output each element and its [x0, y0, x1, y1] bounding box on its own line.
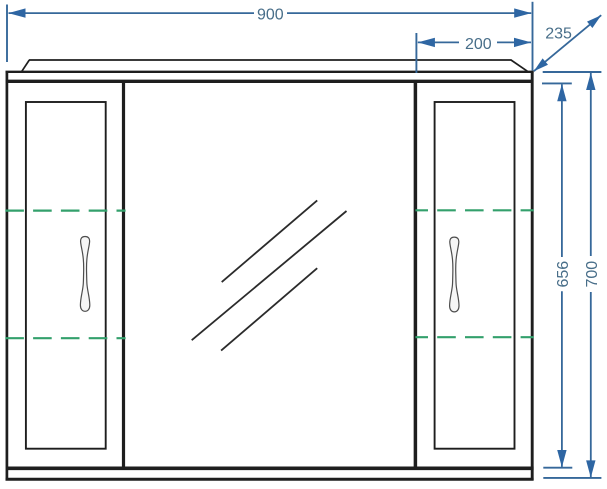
svg-text:235: 235 — [545, 25, 572, 42]
svg-text:900: 900 — [257, 7, 284, 24]
svg-text:656: 656 — [555, 261, 572, 288]
svg-text:700: 700 — [584, 261, 601, 288]
svg-text:200: 200 — [465, 36, 492, 53]
